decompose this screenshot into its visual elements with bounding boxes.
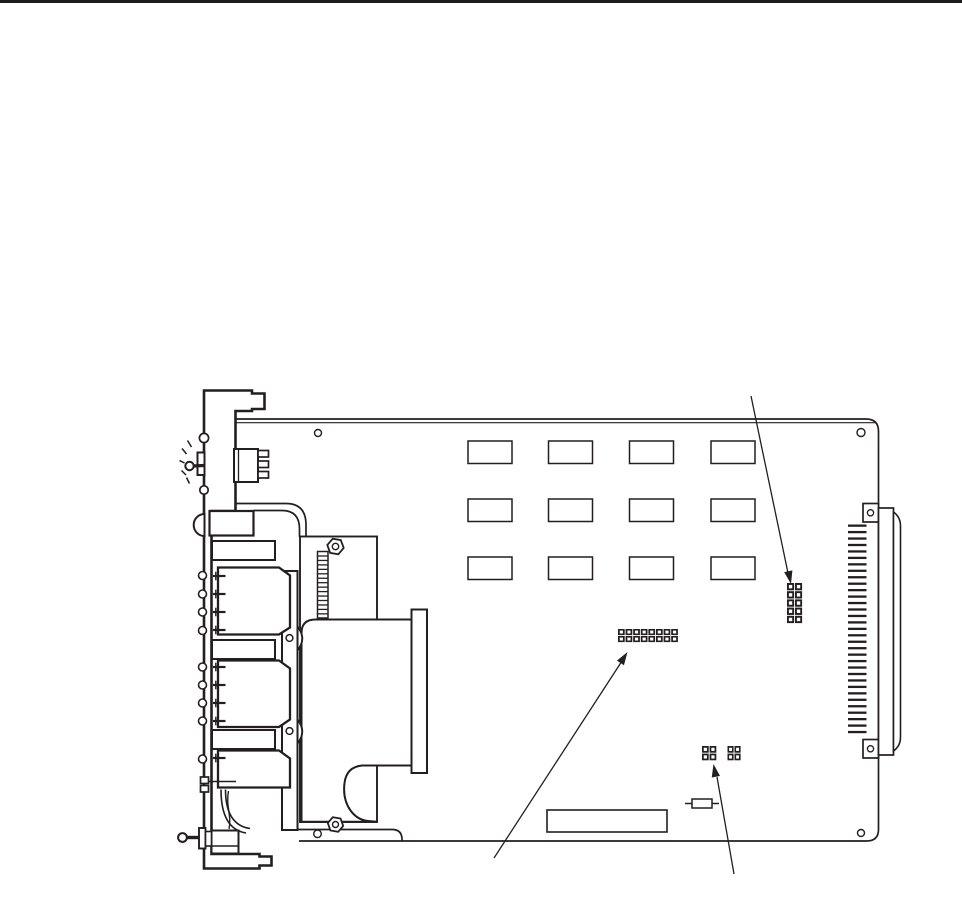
bracket-rivet-lower — [286, 728, 293, 735]
ic-package — [711, 441, 755, 464]
mounting-hole-top-left — [315, 430, 322, 437]
arrow-to-small-jumper-block — [712, 764, 734, 874]
edge-pin — [848, 576, 867, 578]
edge-pin — [848, 724, 867, 726]
jack-connector-2 — [218, 661, 290, 728]
terminal-block-lower — [201, 786, 209, 793]
ic-package — [549, 557, 593, 580]
screw-nut-bottom — [328, 817, 343, 832]
ic-grid — [468, 441, 755, 580]
faceplate-jack-nut — [199, 627, 207, 635]
jumper-block-center — [618, 629, 678, 642]
mounting-hole-bottom-right — [858, 830, 865, 837]
switch-body-bottom — [212, 831, 239, 854]
edge-pin — [848, 570, 867, 572]
faceplate-jack-nut — [199, 572, 207, 580]
screw-nut-top — [327, 539, 343, 555]
edge-pin — [848, 557, 867, 559]
ic-package — [630, 557, 674, 580]
edge-pin — [848, 608, 867, 610]
document-page — [0, 0, 962, 903]
edge-pin — [848, 615, 867, 617]
terminal-block-upper — [201, 777, 209, 784]
edge-pin — [848, 628, 867, 630]
edge-pin — [848, 666, 867, 668]
burst-dash — [180, 461, 185, 464]
ic-package — [549, 441, 593, 464]
edge-pin — [848, 647, 867, 649]
edge-pin — [848, 537, 867, 539]
cover-side-rail — [412, 610, 428, 774]
edge-pin — [848, 718, 867, 720]
edge-pin — [848, 731, 867, 733]
ic-package — [468, 441, 512, 464]
ic-package — [711, 557, 755, 580]
edge-pin — [848, 679, 867, 681]
faceplate-jack-nut — [199, 608, 207, 616]
faceplate-jack-nut — [199, 755, 207, 763]
connector-barrel-bump — [194, 514, 205, 536]
faceplate-jack-nut — [199, 681, 207, 689]
edge-pin — [848, 692, 867, 694]
arrow-to-right-jumper-block — [751, 396, 792, 584]
edge-pin — [848, 595, 867, 597]
ic-package — [468, 557, 512, 580]
switch-lever-ball-top — [185, 462, 193, 470]
arrowhead — [784, 570, 792, 584]
edge-pin — [848, 602, 867, 604]
silkscreen-label-box — [547, 810, 667, 832]
three-pin-connector — [234, 449, 269, 482]
mounting-hole-top-right — [857, 429, 865, 437]
faceplate-hole-upper — [199, 433, 208, 442]
edge-pin — [848, 712, 867, 714]
edge-pin — [848, 525, 867, 527]
jack-label-plate-1 — [212, 541, 275, 560]
switch-lever-ball-bottom — [178, 833, 187, 842]
edge-pin — [848, 654, 867, 656]
faceplate-jack-nut — [199, 717, 207, 725]
edge-pin — [848, 531, 867, 533]
faceplate-jack-nut — [199, 663, 207, 671]
edge-connector-pins — [848, 525, 867, 734]
hex-nut-hole — [332, 543, 338, 549]
switch-bushing-bottom — [199, 828, 206, 849]
hex-nut-hole — [333, 822, 339, 828]
ic-package — [468, 499, 512, 522]
bracket-bend-inner — [254, 511, 300, 538]
edge-pin — [848, 563, 867, 565]
bracket-rivet-upper — [286, 635, 293, 642]
burst-dash — [182, 471, 187, 476]
jack-label-plate-2 — [212, 640, 275, 659]
switch-bushing-top — [198, 453, 205, 476]
shield-base-hole — [314, 830, 322, 838]
connector-body — [879, 508, 894, 755]
faceplate-collar — [210, 511, 254, 536]
pcb-assembly-diagram — [0, 0, 962, 903]
board-components — [547, 799, 719, 832]
burst-dash — [182, 449, 187, 455]
edge-pin — [848, 583, 867, 585]
faceplate-hole-lower — [200, 486, 208, 494]
edge-pin — [848, 550, 867, 552]
jumper-block-right — [787, 583, 802, 623]
ic-package — [549, 499, 593, 522]
jack-label-plate-3 — [212, 730, 275, 749]
toggle-switch-top — [180, 441, 205, 484]
edge-pin — [848, 641, 867, 643]
edge-pin — [848, 699, 867, 701]
connector-shell — [894, 512, 901, 751]
backplane-edge-connector — [848, 504, 901, 759]
faceplate-jack-nut — [199, 590, 207, 598]
pin-header — [318, 552, 329, 619]
edge-pin — [848, 621, 867, 623]
burst-dash — [188, 441, 192, 448]
faceplate-jack-nut — [199, 699, 207, 707]
edge-pin — [848, 589, 867, 591]
ic-package — [630, 441, 674, 464]
faceplate-assembly — [178, 391, 290, 869]
jumper-blocks — [618, 583, 802, 760]
ic-package — [630, 499, 674, 522]
arrowhead — [712, 764, 720, 778]
resistor — [685, 799, 719, 808]
ic-package — [711, 499, 755, 522]
edge-pin — [848, 686, 867, 688]
edge-pin — [848, 634, 867, 636]
arrowhead — [617, 652, 628, 665]
connector-ear-hole-top — [867, 510, 873, 516]
edge-pin — [848, 660, 867, 662]
jumper-block-small-left — [702, 746, 716, 760]
edge-pin — [848, 705, 867, 707]
jumper-block-small-right — [728, 746, 741, 760]
connector-ear-hole-bottom — [867, 746, 873, 752]
edge-pin — [848, 673, 867, 675]
edge-pin — [848, 544, 867, 546]
burst-dash — [187, 478, 190, 484]
jack-connector-1 — [218, 568, 290, 635]
